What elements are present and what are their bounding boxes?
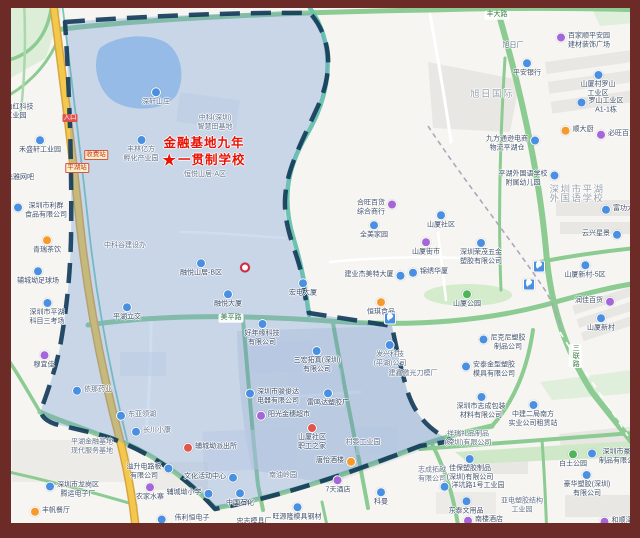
- road-label: 丰大路: [485, 11, 510, 20]
- blue-poi-icon[interactable]: [42, 298, 52, 308]
- label-text: 中科谷建设办: [104, 242, 146, 251]
- blue-poi-icon[interactable]: [298, 278, 308, 288]
- label-text: 有限公司: [303, 366, 331, 375]
- label-text: 白土公园: [559, 460, 587, 469]
- label-text: 职工之家: [298, 443, 326, 452]
- label-text: 深轩山庄: [142, 98, 170, 107]
- map-poi-label[interactable]: 和顺泽: [612, 517, 633, 526]
- map-poi-label[interactable]: 中建二局南方实业公司租赁站: [509, 400, 558, 428]
- map-poi-label[interactable]: 深圳市龙岗区腾运电子厂: [57, 482, 99, 499]
- label-text: 科曼: [374, 498, 388, 507]
- label-text: 东泰文用品: [449, 507, 484, 516]
- map-poi-label[interactable]: 志成拓越有限公司: [418, 467, 446, 484]
- map-poi-label[interactable]: 深圳市利群食品有限公司: [25, 203, 67, 220]
- blue-poi-icon[interactable]: [376, 487, 386, 497]
- blue-poi-icon[interactable]: [612, 230, 622, 240]
- label-text: 罗山工业区: [589, 98, 624, 107]
- label-text: 青瑞茶饮: [33, 246, 61, 255]
- map-poi-label[interactable]: 山厦新村-5区: [564, 260, 605, 280]
- map-poi-label[interactable]: 辅城坳派出所: [195, 443, 237, 452]
- label-text: 建鑫激光刀模厂: [389, 370, 438, 379]
- orange-poi-icon[interactable]: [30, 507, 40, 517]
- label-text: 深圳市平湖: [30, 309, 65, 318]
- map-poi-label[interactable]: 顺大厨: [573, 126, 594, 135]
- map-poi-label[interactable]: 辅城坳小学: [167, 489, 202, 498]
- blue-poi-icon[interactable]: [136, 135, 146, 145]
- label-text: 深圳市志成包装: [457, 403, 506, 412]
- label-text: 平湖站: [67, 164, 87, 172]
- label-text: 旺源隆模具钢材: [273, 513, 322, 522]
- map-poi-label[interactable]: 云兴星景: [582, 230, 610, 239]
- label-text: 电器有限公司: [257, 397, 299, 406]
- blue-poi-icon[interactable]: [292, 502, 302, 512]
- label-text: 7天酒店: [326, 486, 351, 495]
- blue-poi-icon[interactable]: [323, 388, 333, 398]
- map-poi-label[interactable]: 穆宜佳: [34, 350, 55, 370]
- blue-poi-icon[interactable]: [45, 482, 55, 492]
- map-poi-label[interactable]: 白土公园: [559, 449, 587, 469]
- label-text: 忠志模具厂: [237, 518, 272, 527]
- purple-poi-icon[interactable]: [256, 411, 266, 421]
- label-text: 飞雅网吧: [6, 174, 34, 183]
- label-text: 村委工业园: [346, 439, 381, 448]
- blue-poi-icon[interactable]: [593, 70, 603, 80]
- label-text: 九方通逊电商: [486, 136, 528, 145]
- map-poi-label[interactable]: 发兴科技(平湖)公司: [374, 340, 407, 368]
- blue-poi-icon[interactable]: [204, 489, 214, 499]
- map-poi-label[interactable]: 融悦山居-B区: [180, 258, 222, 278]
- label-text: 农家水寨: [136, 493, 164, 502]
- parking-poi-icon[interactable]: P: [533, 261, 545, 273]
- map-poi-label[interactable]: 合旺百货综合商行: [357, 200, 385, 217]
- label-text: 工业园: [512, 506, 533, 515]
- label-text: 旭日厂: [503, 42, 524, 51]
- label-text: 山厦街市: [412, 248, 440, 257]
- blue-poi-icon[interactable]: [385, 340, 395, 350]
- map-poi-label[interactable]: 伟利恒电子(深圳)有限公司: [169, 515, 216, 532]
- label-text: 塑胶有限公司: [460, 258, 502, 267]
- label-text: 尼克尼塑胶: [491, 335, 526, 344]
- map-poi-label[interactable]: 中国石化: [226, 488, 254, 508]
- label-text: 科目三考场: [30, 318, 65, 327]
- label-text: 制品有限公司: [599, 457, 640, 466]
- label-text: 材料有限公司: [460, 412, 502, 421]
- map-poi-label[interactable]: 忠志模具厂: [237, 518, 272, 527]
- map-poi-label[interactable]: 丰帆餐厅: [42, 507, 70, 516]
- purple-poi-icon[interactable]: [596, 130, 606, 140]
- map-poi-label[interactable]: 雷鸣达塑胶厂: [307, 388, 349, 408]
- map-poi-label[interactable]: 唐怡酒楼: [316, 457, 344, 466]
- map-poi-label[interactable]: P: [533, 261, 545, 274]
- blue-poi-icon[interactable]: [587, 449, 597, 459]
- label-text: 平湖金融基地: [71, 439, 113, 448]
- map-poi-label[interactable]: 百家顺平安园建材装饰广场: [568, 33, 610, 50]
- map-poi-label[interactable]: 平湖外国语学校附属幼儿园: [499, 171, 548, 188]
- orange-poi-icon[interactable]: [376, 297, 386, 307]
- map-poi-label[interactable]: 长川小康: [143, 427, 171, 436]
- map-poi-label[interactable]: 山厦街市: [412, 237, 440, 257]
- label-text: 和顺泽: [612, 517, 633, 526]
- label-text: 实业公司租赁站: [509, 420, 558, 429]
- map-poi-label[interactable]: 阳光金穗超市: [268, 411, 310, 420]
- map-poi-label[interactable]: 富功大厦: [613, 205, 640, 214]
- label-text: 融悦大厦: [214, 300, 242, 309]
- map-poi-label[interactable]: 南油岭园: [269, 472, 297, 481]
- blue-poi-icon[interactable]: [550, 171, 560, 181]
- map-poi-label[interactable]: 日山红科技工业园: [0, 104, 34, 121]
- label-text: 佳保塑胶制品: [449, 465, 491, 474]
- school-district-marker[interactable]: 金融基地九年 ★一贯制学校: [163, 135, 246, 169]
- blue-poi-icon[interactable]: [235, 488, 245, 498]
- orange-poi-icon[interactable]: [561, 126, 571, 136]
- map-poi-label[interactable]: 好年缘科技有限公司: [245, 319, 280, 347]
- map-poi-label[interactable]: P: [523, 279, 535, 292]
- map-poi-label[interactable]: 平湖立交: [113, 302, 141, 322]
- label-text: 美平路: [221, 314, 242, 323]
- blue-poi-icon[interactable]: [245, 389, 255, 399]
- label-text: 好年缘科技: [245, 330, 280, 339]
- blue-poi-icon[interactable]: [461, 496, 471, 506]
- label-text: 深圳市骏俊达: [257, 389, 299, 398]
- label-text: 山厦社区: [427, 221, 455, 230]
- label-text: 南油岭园: [269, 472, 297, 481]
- map-poi-label[interactable]: 安泰金型塑胶模具有限公司: [473, 362, 515, 379]
- red-poi-icon[interactable]: [183, 443, 193, 453]
- blue-poi-icon[interactable]: [577, 98, 587, 108]
- label-text: 润佳百货: [575, 297, 603, 306]
- map-poi-label[interactable]: 全美家园: [360, 220, 388, 240]
- label-text: 中国石化: [226, 499, 254, 508]
- blue-poi-icon[interactable]: [530, 136, 540, 146]
- blue-poi-icon[interactable]: [13, 203, 23, 213]
- blue-poi-icon[interactable]: [72, 386, 82, 396]
- map-poi-label[interactable]: 文化活动中心: [184, 473, 226, 482]
- map-poi-label[interactable]: 山厦新村: [587, 313, 615, 333]
- green-poi-icon[interactable]: [568, 449, 578, 459]
- label-text: 孵化产业园: [124, 155, 159, 164]
- label-text: (平湖)公司: [374, 360, 407, 369]
- blue-poi-icon[interactable]: [196, 258, 206, 268]
- school-name-line2: 一贯制学校: [178, 153, 246, 167]
- label-text: 中科(深圳): [199, 115, 232, 124]
- map-poi-label[interactable]: 东泰文用品: [449, 496, 484, 516]
- label-text: 溢升电路板: [127, 464, 162, 473]
- map-poi-label[interactable]: 南楼酒店: [475, 516, 503, 525]
- label-text: 志成拓越: [418, 467, 446, 476]
- map-poi-label[interactable]: 罗山工业区A1-1栋: [589, 98, 624, 115]
- label-text: 文化活动中心: [184, 473, 226, 482]
- blue-poi-icon[interactable]: [312, 346, 322, 356]
- school-name-line1: 金融基地九年: [163, 135, 246, 152]
- label-text: 百家顺平安园: [568, 33, 610, 42]
- label-text: 全美家园: [360, 231, 388, 240]
- label-text: 唐怡酒楼: [316, 457, 344, 466]
- purple-poi-icon[interactable]: [387, 200, 397, 210]
- label-text: 发兴科技: [376, 351, 404, 360]
- map-poi-label[interactable]: 平湖金融基地现代服务基地: [71, 439, 113, 456]
- map-poi-label[interactable]: 中科谷建设办: [104, 242, 146, 251]
- label-text: 收费站: [86, 151, 106, 159]
- label-text: 三宏拓真(深圳): [294, 357, 341, 366]
- purple-poi-icon[interactable]: [600, 517, 610, 527]
- map-poi-label[interactable]: 融悦大厦: [214, 289, 242, 309]
- label-text: 必旺百货: [608, 130, 636, 139]
- label-text: 深圳荣茂五金: [460, 249, 502, 258]
- map-poi-label[interactable]: 山厦社区职工之家: [298, 423, 326, 451]
- map-poi-label[interactable]: 深圳市骏俊达电器有限公司: [257, 389, 299, 406]
- blue-poi-icon[interactable]: [35, 135, 45, 145]
- sign-red-label: 入口: [63, 114, 78, 122]
- school-name-line2-wrap: ★一贯制学校: [163, 152, 246, 169]
- orange-poi-icon[interactable]: [346, 457, 356, 467]
- blue-poi-icon[interactable]: [116, 411, 126, 421]
- label-text: 深圳市龙岗区: [57, 482, 99, 491]
- map-poi-label[interactable]: 7天酒店: [326, 475, 351, 495]
- blue-poi-icon[interactable]: [476, 238, 486, 248]
- blue-poi-icon[interactable]: [479, 335, 489, 345]
- map-poi-label[interactable]: 深圳市豪华制品有限公司: [599, 449, 640, 466]
- map-poi-label[interactable]: 佳保塑胶制品(深圳)有限公司: [447, 454, 494, 482]
- label-text: 富功大厦: [613, 205, 640, 214]
- parking-poi-icon[interactable]: P: [384, 313, 396, 325]
- label-text: 中建二局南方: [512, 411, 554, 420]
- road-label: 美平路: [219, 314, 244, 323]
- map-poi-label[interactable]: 溢升电路板有限公司: [127, 464, 162, 481]
- road-label: 三联路: [569, 344, 582, 368]
- map-poi-label[interactable]: 青瑞茶饮: [33, 235, 61, 255]
- map-poi-label[interactable]: 村委工业园: [346, 439, 381, 448]
- blue-poi-icon[interactable]: [580, 260, 590, 270]
- map-poi-label[interactable]: 亚电塑胶结构工业园: [501, 498, 543, 515]
- label-text: 阳光金穗超市: [268, 411, 310, 420]
- label-text: 亚电塑胶结构: [501, 498, 543, 507]
- map-poi-label[interactable]: 九方通逊电商物流平湖仓: [486, 136, 528, 153]
- map-poi-label[interactable]: 辅城坳足球场: [17, 266, 59, 286]
- label-text: 日山红科技: [0, 104, 34, 113]
- label-text: 食品有限公司: [25, 211, 67, 220]
- label-text: 平安银行: [513, 69, 541, 78]
- purple-poi-icon[interactable]: [605, 297, 615, 307]
- blue-poi-icon[interactable]: [476, 392, 486, 402]
- label-text: 伟利恒电子: [174, 515, 209, 524]
- map-poi-label[interactable]: 平安银行: [513, 58, 541, 78]
- label-text: 深圳市利群: [29, 203, 64, 212]
- label-text: 豪华塑胶(深圳): [564, 481, 611, 490]
- label-text: 洋坑路1号工业园: [452, 482, 505, 491]
- label-text: 外国语学校: [549, 195, 604, 204]
- map-screenshot: 日山红科技工业园禾盛轩工业园飞雅网吧深圳市利群食品有限公司青瑞茶饮辅城坳足球场深…: [0, 0, 640, 538]
- map-poi-label[interactable]: 洋坑路1号工业园: [452, 482, 505, 491]
- blue-poi-icon[interactable]: [157, 515, 167, 525]
- label-text: 有限公司: [248, 339, 276, 348]
- blue-poi-icon[interactable]: [408, 268, 418, 278]
- label-text: 山厦公园: [453, 300, 481, 309]
- map-poi-label[interactable]: 山厦村罗山工业区: [581, 70, 616, 98]
- label-text: 山厦村罗山: [581, 81, 616, 90]
- map-poi-label[interactable]: 旺源隆模具钢材: [273, 502, 322, 522]
- label-text: 合旺百货: [357, 200, 385, 209]
- purple-poi-icon[interactable]: [556, 33, 566, 43]
- label-text: 平湖立交: [113, 313, 141, 322]
- label-text: 山厦社区: [298, 434, 326, 443]
- label-text: 南楼酒店: [475, 516, 503, 525]
- red-poi-icon[interactable]: [307, 423, 317, 433]
- label-text: 丰林亿方: [127, 146, 155, 155]
- map-poi-label[interactable]: 尼克尼塑胶制品公司: [491, 335, 526, 352]
- blue-poi-icon[interactable]: [151, 87, 161, 97]
- map-poi-label[interactable]: 深圳荣茂五金塑胶有限公司: [460, 238, 502, 266]
- star-icon: ★: [163, 152, 177, 169]
- label-text: 旭日国际: [470, 91, 514, 100]
- label-text: 附属幼儿园: [506, 179, 541, 188]
- map-poi-label[interactable]: 恒悦山居-A区: [184, 171, 226, 180]
- label-text: 安泰金型塑胶: [473, 362, 515, 371]
- blue-poi-icon[interactable]: [461, 362, 471, 372]
- label-text: 深圳市豪华: [603, 449, 638, 458]
- map-poi-label[interactable]: 建业杰美特大厦: [345, 271, 394, 280]
- blue-poi-icon[interactable]: [396, 271, 406, 281]
- blue-poi-icon[interactable]: [228, 473, 238, 483]
- label-text: 山厦新村: [587, 324, 615, 333]
- label-text: 辅城坳派出所: [195, 443, 237, 452]
- label-text: 有限公司: [418, 475, 446, 484]
- label-text: 综合商行: [357, 208, 385, 217]
- area-label: 深圳市平湖外国语学校: [549, 187, 604, 204]
- map-poi-label[interactable]: 深轩山庄: [142, 87, 170, 107]
- label-text: (深圳)有限公司: [447, 474, 494, 483]
- map-poi-label[interactable]: 润佳百货: [575, 297, 603, 306]
- blue-poi-icon[interactable]: [522, 58, 532, 68]
- map-poi-label[interactable]: 农家水寨: [136, 482, 164, 502]
- label-text: 现代服务基地: [71, 447, 113, 456]
- label-text: 云兴星景: [582, 230, 610, 239]
- parking-poi-icon[interactable]: P: [523, 279, 535, 291]
- label-text: A1-1栋: [595, 106, 617, 115]
- label-text: 禾盛轩工业园: [19, 146, 61, 155]
- label-text: 恒悦山居-A区: [184, 171, 226, 180]
- map-poi-label[interactable]: 东亚领湖: [128, 411, 156, 420]
- sign-plate-label: 平湖站: [65, 163, 89, 173]
- purple-poi-icon[interactable]: [333, 475, 343, 485]
- map-poi-label[interactable]: 深圳市志成包装材料有限公司: [457, 392, 506, 420]
- poi-labels-layer: 日山红科技工业园禾盛轩工业园飞雅网吧深圳市利群食品有限公司青瑞茶饮辅城坳足球场深…: [0, 0, 640, 538]
- blue-poi-icon[interactable]: [223, 289, 233, 299]
- blue-poi-icon[interactable]: [33, 266, 43, 276]
- label-text: 雷鸣达塑胶厂: [307, 399, 349, 408]
- blue-poi-icon[interactable]: [164, 464, 174, 474]
- label-text: (深圳)有限公司: [169, 523, 216, 532]
- blue-poi-icon[interactable]: [465, 454, 475, 464]
- label-text: 丰帆餐厅: [42, 507, 70, 516]
- purple-poi-icon[interactable]: [463, 516, 473, 526]
- map-poi-label[interactable]: 中科(深圳)智慧田基地: [198, 115, 233, 132]
- map-poi-label[interactable]: 锦绣华厦: [420, 268, 448, 277]
- label-text: 辅城坳足球场: [17, 277, 59, 286]
- label-text: 锦绣华厦: [420, 268, 448, 277]
- blue-poi-icon[interactable]: [257, 319, 267, 329]
- label-text: 腾运电子厂: [61, 490, 96, 499]
- map-poi-label[interactable]: 深圳市平湖科目三考场: [30, 298, 65, 326]
- purple-poi-icon[interactable]: [39, 350, 49, 360]
- label-text: (深圳)有限公司: [445, 439, 492, 448]
- label-text: 建业杰美特大厦: [345, 271, 394, 280]
- map-poi-label[interactable]: 三宏拓真(深圳)有限公司: [294, 346, 341, 374]
- label-text: 制品公司: [494, 343, 522, 352]
- label-text: 辅城坳小学: [167, 489, 202, 498]
- sign-plate-label: 收费站: [84, 150, 108, 160]
- label-text: 有限公司: [130, 472, 158, 481]
- map-poi-label[interactable]: 禾盛轩工业园: [19, 135, 61, 155]
- label-text: 平湖外国语学校: [499, 171, 548, 180]
- label-text: 东亚领湖: [128, 411, 156, 420]
- map-poi-label[interactable]: 科曼: [374, 487, 388, 507]
- label-text: 山厦新村-5区: [564, 271, 605, 280]
- label-text: 丰大路: [487, 11, 508, 20]
- map-poi-label[interactable]: P: [384, 313, 396, 326]
- purple-poi-icon[interactable]: [145, 482, 155, 492]
- label-text: 模具有限公司: [473, 370, 515, 379]
- map-poi-label[interactable]: 建鑫激光刀模厂: [389, 370, 438, 379]
- blue-poi-icon[interactable]: [131, 427, 141, 437]
- label-text: 工业园: [6, 112, 27, 121]
- map-poi-label[interactable]: 豪华塑胶(深圳)有限公司: [564, 470, 611, 498]
- label-text: 宏电大厦: [289, 289, 317, 298]
- map-poi-label[interactable]: 飞雅网吧: [6, 174, 34, 183]
- map-poi-label[interactable]: 山厦公园: [453, 289, 481, 309]
- map-poi-label[interactable]: 必旺百货: [608, 130, 636, 139]
- orange-poi-icon[interactable]: [42, 235, 52, 245]
- label-text: 顺大厨: [573, 126, 594, 135]
- label-text: 融悦山居-B区: [180, 269, 222, 278]
- blue-poi-icon[interactable]: [122, 302, 132, 312]
- metro-poi-icon[interactable]: [240, 263, 250, 273]
- green-poi-icon[interactable]: [462, 289, 472, 299]
- label-text: 三联路: [571, 344, 580, 368]
- purple-poi-icon[interactable]: [421, 237, 431, 247]
- blue-poi-icon[interactable]: [369, 220, 379, 230]
- label-text: 智慧田基地: [198, 123, 233, 132]
- blue-poi-icon[interactable]: [528, 400, 538, 410]
- map-poi-label[interactable]: 依那药业: [84, 386, 112, 395]
- blue-poi-icon[interactable]: [436, 210, 446, 220]
- blue-poi-icon[interactable]: [596, 313, 606, 323]
- map-poi-label[interactable]: 祥瑞礼品制品(深圳)有限公司: [445, 431, 492, 448]
- map-poi-label[interactable]: 宏电大厦: [289, 278, 317, 298]
- label-text: 建材装饰广场: [568, 41, 610, 50]
- map-poi-label[interactable]: 丰林亿方孵化产业园: [124, 135, 159, 163]
- blue-poi-icon[interactable]: [601, 205, 611, 215]
- map-poi-label[interactable]: 山厦社区: [427, 210, 455, 230]
- label-text: 祥瑞礼品制品: [447, 431, 489, 440]
- label-text: 穆宜佳: [34, 361, 55, 370]
- label-text: 物流平湖仓: [490, 144, 525, 153]
- blue-poi-icon[interactable]: [582, 470, 592, 480]
- map-poi-label[interactable]: 旭日厂: [503, 42, 524, 51]
- label-text: 有限公司: [573, 490, 601, 499]
- label-text: 入口: [64, 114, 77, 122]
- label-text: 长川小康: [143, 427, 171, 436]
- map-poi-label[interactable]: [240, 263, 250, 274]
- label-text: 依那药业: [84, 386, 112, 395]
- area-label: 旭日国际: [470, 91, 514, 100]
